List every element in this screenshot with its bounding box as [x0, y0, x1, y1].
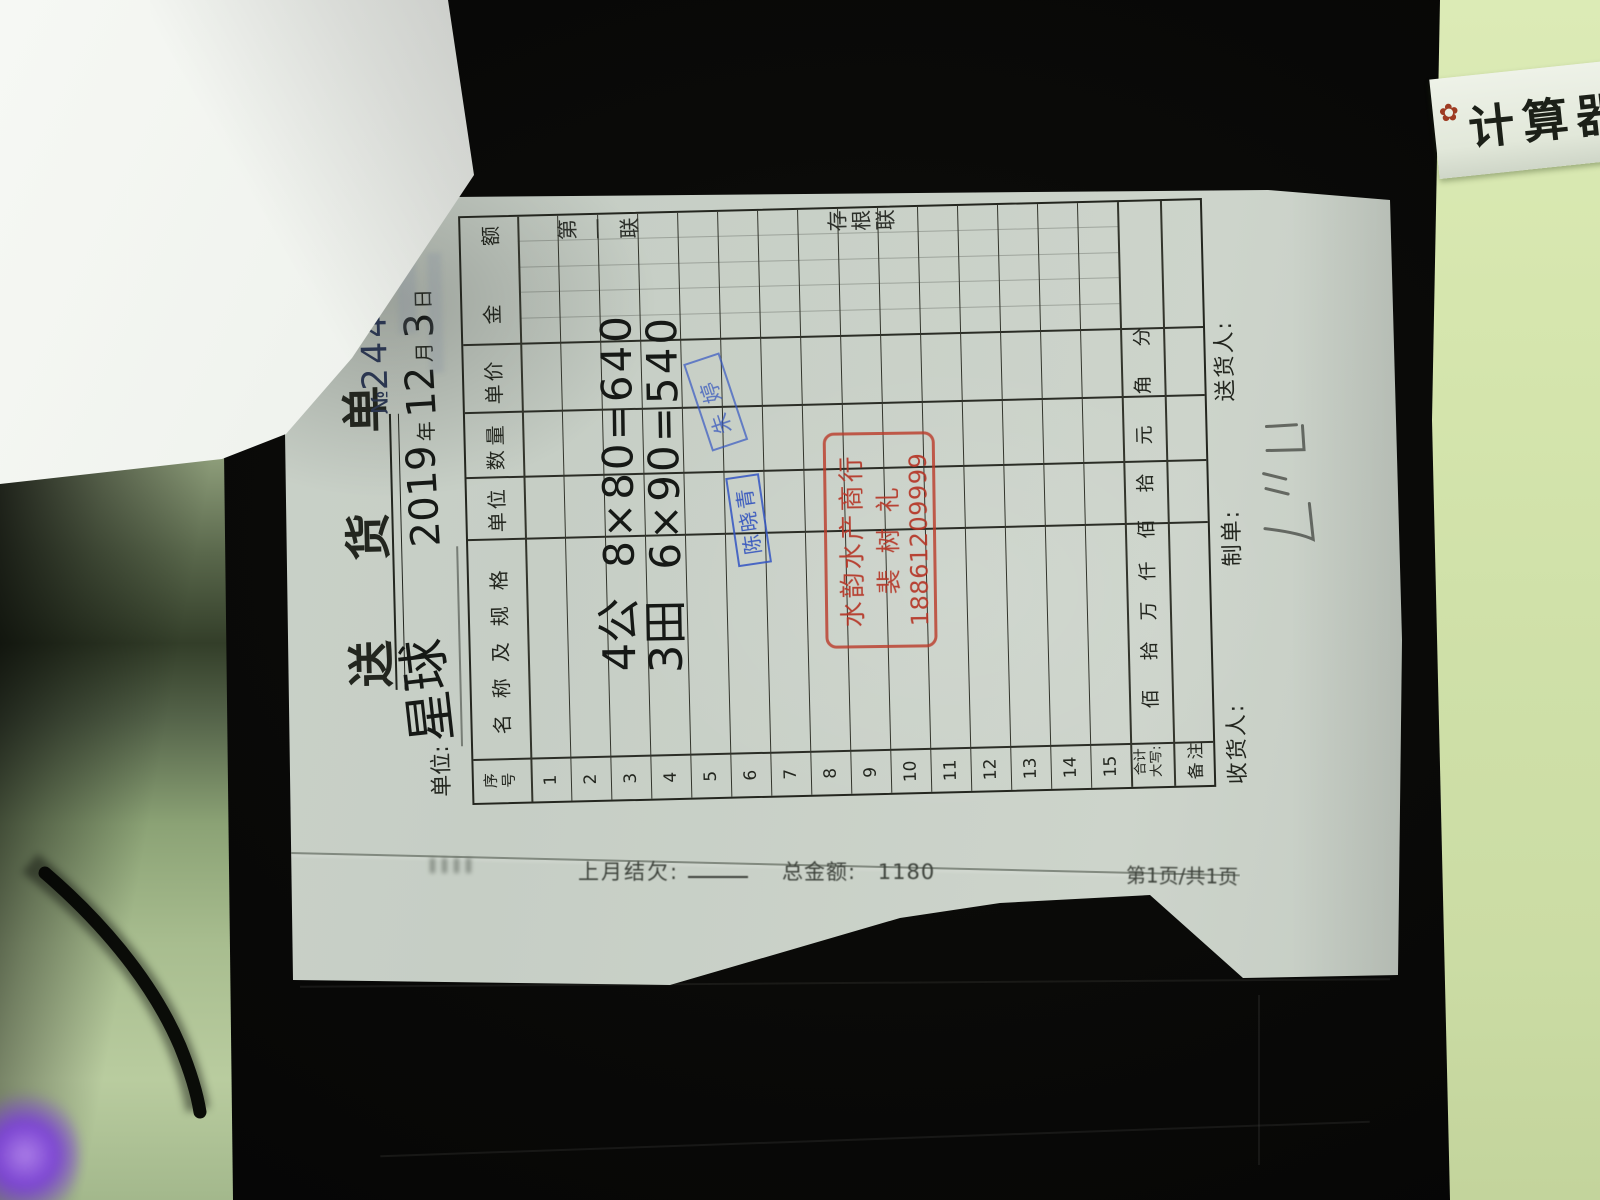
deliverer-label: 送货人: [1206, 320, 1240, 402]
digit-column-label: 万 [1134, 601, 1161, 621]
header-price: 单价 [478, 358, 508, 405]
row-line [997, 205, 1013, 790]
remark-label: 备注 [1181, 739, 1207, 780]
row-number: 4 [660, 756, 681, 798]
maker-label: 制单: [1213, 509, 1246, 567]
flower-icon: ✿ [1437, 98, 1460, 128]
row-number: 10 [900, 750, 921, 792]
unit-field-label: 单位: [423, 745, 456, 797]
digit-column-label: 仟 [1133, 561, 1160, 581]
receiver-label: 收货人: [1218, 703, 1252, 785]
stamp-person-name: 裴树礼 [868, 435, 907, 631]
header-line [517, 217, 533, 802]
amount-subcolumn-line [518, 252, 1118, 268]
row-line [957, 206, 973, 791]
header-no: 序 号 [481, 761, 518, 800]
delivery-note: 送 货 单 №2443 单位: 星球 2019 年 12 月 3 日 第一联 存 [278, 181, 1401, 973]
calculator-name-plate: ✿ 计算器 [1429, 61, 1600, 179]
row-number: 8 [820, 752, 841, 794]
signature-scribble [1247, 369, 1336, 551]
stamp-phone-number: 18861209999 [904, 434, 935, 644]
grand-total-handwritten: ¥ 1180 ˊ [1207, 0, 1317, 177]
row-line [557, 216, 573, 801]
row-number: 2 [580, 758, 601, 800]
grand-total-value: 1180 [1221, 17, 1308, 159]
digit-column-label: 佰 [1132, 519, 1159, 539]
header-amount: 金 额 [474, 200, 506, 325]
digit-column-label: 分 [1127, 327, 1154, 347]
digit-column-label: 拾 [1135, 641, 1162, 661]
header-unit: 单位 [481, 486, 511, 533]
row-line [1077, 203, 1093, 788]
row-number: 3 [620, 757, 641, 799]
row-line [797, 210, 813, 795]
row-number: 1 [540, 759, 561, 801]
item-2-calc: 6×90=540 [637, 315, 690, 571]
calculator-label-text: 计算器 [1465, 76, 1600, 159]
row-number: 13 [1020, 747, 1041, 789]
column-line [463, 326, 1203, 346]
year-handwritten: 2019 [398, 444, 450, 548]
row-number: 15 [1100, 745, 1121, 787]
row-number: 14 [1060, 746, 1081, 788]
delivery-note-rotated: 送 货 单 №2443 单位: 星球 2019 年 12 月 3 日 第一联 存 [278, 181, 1401, 973]
stamp-company-name: 水韵水产商行 [831, 435, 871, 645]
row-line [1037, 204, 1053, 789]
digit-column-label: 元 [1129, 425, 1156, 445]
row-number: 7 [780, 753, 801, 795]
header-qty: 数量 [479, 420, 509, 471]
serial-prefix: № [367, 390, 394, 415]
row-number: 5 [700, 755, 721, 797]
digit-column-label: 拾 [1131, 473, 1158, 493]
row-number: 9 [860, 751, 881, 793]
device-seam [380, 1121, 1369, 1157]
row-number: 12 [980, 748, 1001, 790]
photo-of-delivery-note: ✿ 计算器 上月结欠: 总金额: 1180 第1页/共1页 送 [0, 0, 1600, 1200]
currency-symbol: ¥ [1277, 143, 1312, 167]
red-company-stamp: 水韵水产商行 裴树礼 18861209999 [823, 431, 938, 649]
header-name: 名称及规格 [482, 554, 515, 735]
digit-column-label: 角 [1128, 375, 1155, 395]
month-handwritten: 12 [397, 365, 446, 419]
digit-column-label: 佰 [1136, 689, 1163, 709]
row-number: 6 [740, 754, 761, 796]
customer-name-handwritten: 星球 [380, 635, 466, 747]
device-seam [1258, 995, 1260, 1165]
amount-subcolumn-line [519, 277, 1119, 293]
calculator-device-edge [1424, 0, 1600, 1200]
row-number: 11 [940, 749, 961, 791]
amount-subcolumn-line [518, 226, 1118, 242]
tick-mark: ˊ [1208, 2, 1271, 34]
total-in-words-label: 合计 大写: [1132, 739, 1165, 784]
show-through-mark [427, 253, 444, 373]
item-2-spec: 3田 [629, 599, 695, 674]
row-line [1117, 202, 1133, 787]
column-line [465, 394, 1205, 414]
year-label: 年 [410, 421, 445, 442]
